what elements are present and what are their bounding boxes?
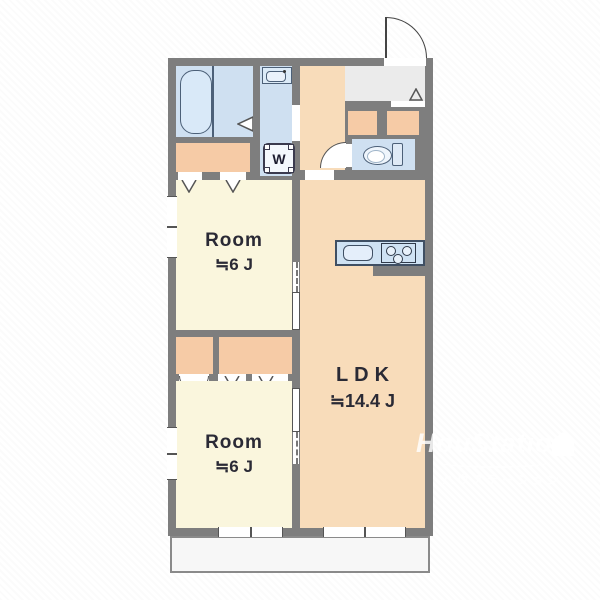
washer-pan-corner [264, 167, 270, 173]
ldk-label: LDK ≒14.4 J [300, 362, 425, 413]
room-lower-name: Room [176, 430, 292, 456]
window [218, 527, 283, 537]
closet-upper [176, 143, 250, 172]
ldk-name: LDK [300, 362, 425, 389]
sliding-door-panel [292, 388, 300, 432]
room-upper-name: Room [176, 228, 292, 254]
toilet-door-gap [346, 144, 352, 167]
closet-middle-right [219, 337, 292, 374]
washer-pan-corner [288, 167, 294, 173]
floor-plan: W Room ≒6 J Room ≒6 J [0, 0, 600, 600]
washer-label: W [265, 151, 293, 167]
watermark-swoosh [438, 456, 550, 468]
room-lower-area: ≒6 J [176, 456, 292, 479]
burner-icon [393, 254, 403, 264]
ldk-area [300, 180, 425, 528]
window [167, 427, 177, 480]
sliding-door-panel [292, 292, 300, 330]
bath-divider [212, 66, 214, 137]
room-upper-label: Room ≒6 J [176, 228, 292, 277]
window-tick [167, 453, 177, 455]
kitchen-sink [343, 245, 373, 261]
room-lower-label: Room ≒6 J [176, 430, 292, 479]
closet-upper-door-gap [220, 172, 246, 180]
closet-middle-left [176, 337, 213, 374]
bathtub [180, 70, 212, 134]
window-tick [167, 226, 177, 228]
shoe-cabinet-right [387, 111, 419, 135]
closet-upper-door-gap [178, 172, 202, 180]
folding-door-marker-icon [181, 180, 197, 193]
washing-machine-space: W [263, 143, 295, 174]
shoe-cabinet-left [348, 111, 377, 135]
folding-door-marker-icon [225, 180, 241, 193]
sliding-door-track [293, 432, 299, 464]
faucet-dot-icon [283, 70, 286, 73]
washbasin [262, 67, 292, 84]
window [167, 196, 177, 258]
window [323, 527, 406, 537]
washer-pan-corner [288, 144, 294, 150]
balcony [170, 536, 430, 573]
front-door-gap [384, 58, 426, 66]
washer-pan-corner [264, 144, 270, 150]
toilet-tank [392, 143, 403, 166]
kitchen-wall-stub [373, 266, 433, 276]
window-tick [250, 527, 252, 537]
ldk-area-text: ≒14.4 J [300, 389, 425, 413]
bathroom-door-icon [237, 116, 253, 132]
window-tick [364, 527, 366, 537]
washroom-door-gap [292, 105, 300, 141]
room-upper-area: ≒6 J [176, 254, 292, 277]
ldk-door-gap [305, 170, 334, 180]
entrance-step [391, 101, 425, 107]
burner-icon [402, 246, 412, 256]
front-door-swing [386, 17, 427, 58]
sliding-door-track [293, 262, 299, 292]
toilet-seat [367, 150, 385, 163]
watermark-brand: HouStation [416, 428, 570, 459]
stove [381, 243, 416, 263]
toilet-bowl-icon [363, 146, 392, 165]
watermark-house-icon [552, 442, 574, 456]
entrance-step-marker-icon [409, 88, 423, 101]
watermark-subtitle: ハウステーション [442, 471, 562, 488]
